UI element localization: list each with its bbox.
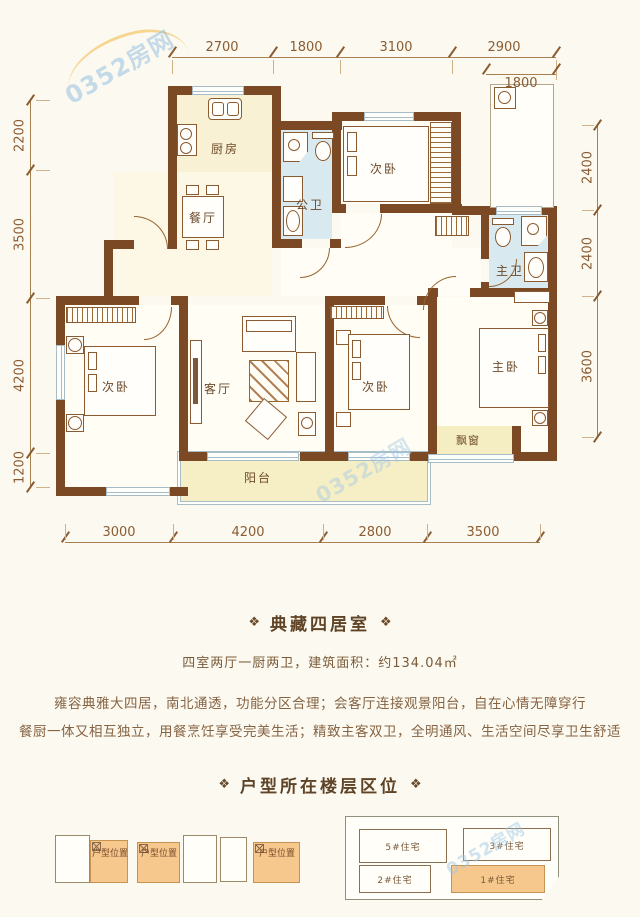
dresser-icon <box>514 291 550 303</box>
hall-cabinet-icon <box>435 216 469 236</box>
toilet-icon <box>312 132 334 139</box>
dim-label: 1800 <box>286 40 326 55</box>
sofa-icon <box>296 352 316 402</box>
room-label-public-bath: 公卫 <box>290 196 330 213</box>
dim-label: 3100 <box>376 40 416 55</box>
building-label: 1#住宅 <box>452 873 544 886</box>
dim-label: 4200 <box>228 525 268 540</box>
wardrobe-icon <box>430 122 452 204</box>
room-label-bedroom-mid: 次卧 <box>356 378 396 395</box>
room-label-master: 主卧 <box>486 358 526 375</box>
dim-label: 2200 <box>13 116 28 156</box>
building-2: 2#住宅 <box>359 865 431 893</box>
building-label: 5#住宅 <box>360 840 446 853</box>
dim-label: 1200 <box>13 448 28 488</box>
room-label-bedroom-top: 次卧 <box>364 160 404 177</box>
description-line2: 餐厨一体又相互独立，用餐烹饪享受完美生活；精致主客双卫，全明通风、生活空间尽享卫… <box>0 720 640 740</box>
room-label-balcony: 阳台 <box>238 469 278 486</box>
chair-icon <box>186 240 199 250</box>
dim-label: 2400 <box>581 148 596 188</box>
floor-strip-diagram: 户型位置 户型位置 户型位置 <box>42 832 332 904</box>
wardrobe-icon <box>330 306 384 319</box>
chair-icon <box>206 240 219 250</box>
unit-position-label: 户型位置 <box>141 849 177 860</box>
chair-icon <box>206 185 219 195</box>
room-label-living: 客厅 <box>198 380 238 397</box>
unit-position-label: 户型位置 <box>259 849 295 860</box>
section2-title-row: ❖ 户型所在楼层区位 ❖ <box>0 772 640 797</box>
room-label-dining: 餐厅 <box>183 209 223 226</box>
dim-label: 2900 <box>484 40 524 55</box>
description-line1: 雍容典雅大四居，南北通透，功能分区合理；会客厅连接观景阳台，自在心情无障穿行 <box>0 692 640 712</box>
toilet-icon <box>492 218 514 225</box>
section2-title: 户型所在楼层区位 <box>240 772 400 797</box>
nightstand-icon <box>336 412 351 427</box>
rug <box>249 360 289 402</box>
dim-label: 3600 <box>581 347 596 387</box>
dim-label: 2800 <box>355 525 395 540</box>
building-5: 5#住宅 <box>359 829 447 863</box>
ornament-icon: ❖ <box>248 615 260 630</box>
dim-label: 4200 <box>13 356 28 396</box>
section1-title: 典藏四居室 <box>270 610 370 635</box>
dim-label: 3500 <box>13 215 28 255</box>
area-subtitle: 四室两厅一厨两卫，建筑面积：约134.04㎡ <box>0 652 640 671</box>
dim-label: 3000 <box>99 525 139 540</box>
ornament-icon: ❖ <box>410 777 422 792</box>
building-label: 2#住宅 <box>360 873 430 886</box>
wardrobe-icon <box>66 307 136 323</box>
room-label-kitchen: 厨房 <box>205 140 245 157</box>
dim-label: 2400 <box>581 234 596 274</box>
unit-position-label: 户型位置 <box>92 849 128 860</box>
site-plan: 5#住宅 3#住宅 2#住宅 1#住宅 0352房网 <box>345 816 559 900</box>
ornament-icon: ❖ <box>380 615 392 630</box>
room-label-master-bath: 主卫 <box>490 262 530 279</box>
dim-label: 1800 <box>501 76 541 91</box>
chair-icon <box>186 185 199 195</box>
room-label-bedroom-left: 次卧 <box>96 378 136 395</box>
floorplan-page: 0352房网 <box>0 0 640 917</box>
dim-label: 3500 <box>463 525 503 540</box>
section1-title-row: ❖ 典藏四居室 ❖ <box>0 610 640 635</box>
room-label-bay-window: 飘窗 <box>448 432 488 448</box>
ornament-icon: ❖ <box>218 777 230 792</box>
dim-label: 2700 <box>202 40 242 55</box>
